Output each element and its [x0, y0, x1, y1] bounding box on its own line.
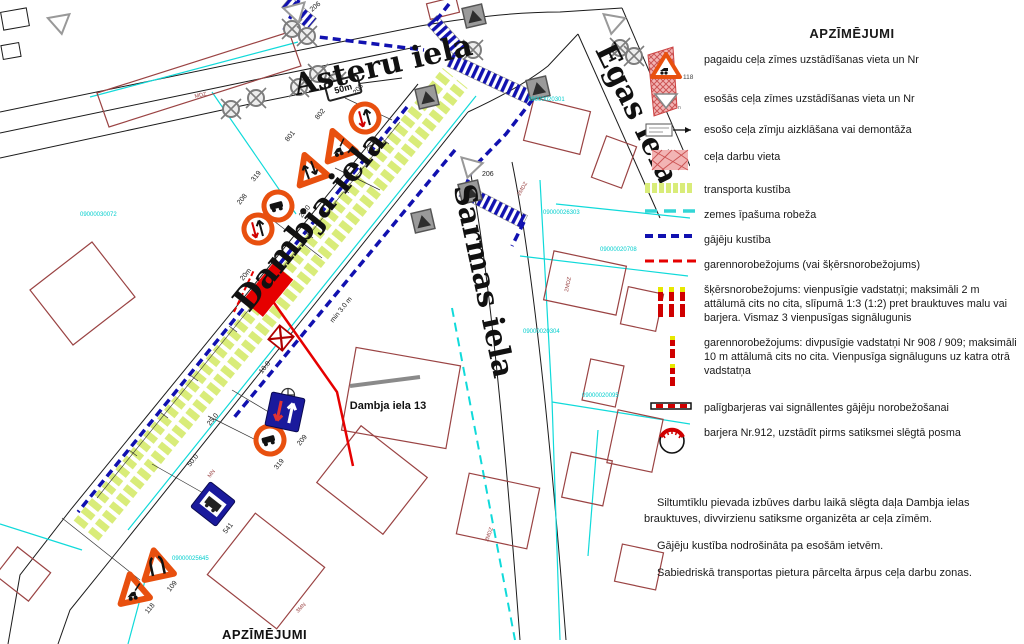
building-label: 2MDZ [484, 526, 495, 543]
legend-work-area-icon [642, 148, 704, 172]
legend-property-boundary-icon [642, 206, 704, 216]
legend-row-property-boundary: zemes īpašuma robeža [642, 206, 1022, 222]
heat-pipe [350, 377, 420, 386]
sign-109-narrowing-icon [139, 547, 174, 580]
sign-number: 206 [309, 1, 323, 14]
legend-row-temp-sign: 118 pagaidu ceļa zīmes uzstādīšanas viet… [642, 51, 1022, 81]
svg-text:118: 118 [683, 74, 694, 81]
legend-temp-sign-icon: 118 [642, 51, 704, 81]
notes-block: Siltumtīklu pievada izbūves darbu laikā … [644, 496, 1022, 593]
legend-cross-barrier-posts-icon [642, 281, 704, 321]
sign-number: 208 [236, 193, 249, 207]
bottom-legend-title: APZĪMĒJUMI [222, 627, 307, 642]
legend-row-aux-barriers: palīgbarjeras vai signāllentes gājēju no… [642, 399, 1022, 415]
sign-number: 801 [284, 130, 297, 144]
legend-text: pagaidu ceļa zīmes uzstādīšanas vieta un… [704, 51, 919, 67]
legend-row-cross-barrier-posts: šķērsnorobežojums: vienpusīgie vadstatņi… [642, 281, 1022, 325]
property-boundaries [0, 42, 690, 644]
legend-row-longitudinal-posts: garennorobežojums: divpusīgie vadstatņi … [642, 334, 1022, 390]
building-label: 3MN [295, 602, 307, 614]
legend-row-barrier-912: barjera Nr.912, uzstādīt pirms satiksmei… [642, 424, 1022, 456]
cadastral-number: 09000020095 [582, 393, 619, 399]
legend-text: gājēju kustība [704, 231, 771, 247]
legend-text: transporta kustība [704, 181, 790, 197]
sign-number: 802 [314, 108, 327, 122]
note-paragraph: Gājēju kustība nodrošināta pa esošām iet… [644, 539, 1022, 555]
legend-longitudinal-barrier-icon [642, 256, 704, 266]
legend-panel: APZĪMĒJUMI 118 pagaidu ceļa zīmes uzstād… [642, 26, 1022, 465]
site-plan-map: 50m Asteru iela Dambja iela Egas iela Sa… [0, 0, 690, 644]
legend-row-longitudinal-barrier: garennorobežojums (vai šķērsnorobežojums… [642, 256, 1022, 272]
legend-text: garennorobežojums (vai šķērsnorobežojums… [704, 256, 920, 272]
sign-number: 319 [250, 170, 263, 184]
temp-blue-sign-icons [191, 392, 306, 527]
cadastral-number: 09000025645 [172, 556, 209, 562]
measurement: min 3.0 m [329, 296, 354, 324]
cadastral-number: 09000020301 [528, 97, 565, 103]
legend-text: esošo ceļa zīmju aizklāšana vai demontāž… [704, 121, 912, 137]
legend-existing-sign-icon: n [642, 90, 704, 112]
address-label: Dambja iela 13 [350, 400, 426, 412]
sign-number: 209 [296, 434, 309, 448]
building-label: 2MDZ [564, 276, 573, 293]
cadastral-number: 09000020708 [600, 247, 637, 253]
legend-text: ceļa darbu vieta [704, 148, 780, 164]
legend-row-existing-sign: n esošās ceļa zīmes uzstādīšanas vieta u… [642, 90, 1022, 112]
sign-209-icon [265, 392, 305, 432]
legend-text: šķērsnorobežojums: vienpusīgie vadstatņi… [704, 281, 1022, 325]
building-label: MN [207, 469, 217, 479]
cadastral-number: 09000020304 [523, 329, 560, 335]
legend-row-pedestrian-flow: gājēju kustība [642, 231, 1022, 247]
legend-row-sign-removal: esošo ceļa zīmju aizklāšana vai demontāž… [642, 121, 1022, 139]
legend-pedestrian-flow-icon [642, 231, 704, 241]
note-paragraph: Sabiedriskā transportas pietura pārcelta… [644, 566, 1022, 582]
sign-541-bus-icon [191, 482, 236, 527]
legend-barrier-912-icon [642, 424, 704, 456]
legend-text: palīgbarjeras vai signāllentes gājēju no… [704, 399, 949, 415]
traffic-scheme-page: 50m Asteru iela Dambja iela Egas iela Sa… [0, 0, 1024, 644]
sign-number: 109 [166, 580, 179, 594]
legend-longitudinal-posts-icon [642, 334, 704, 390]
legend-text: zemes īpašuma robeža [704, 206, 816, 222]
legend-row-transport-flow: transporta kustība [642, 181, 1022, 197]
building-label: 2MDZ [517, 180, 530, 197]
legend-text: garennorobežojums: divpusīgie vadstatņi … [704, 334, 1022, 378]
cadastral-number: 09000030072 [80, 212, 117, 218]
sign-number: 118 [144, 602, 157, 615]
legend-text: barjera Nr.912, uzstādīt pirms satiksmei… [704, 424, 961, 440]
sign-number: 541 [222, 522, 235, 536]
svg-text:n: n [678, 105, 681, 111]
sign-number: 206 [482, 171, 494, 178]
cadastral-number: 09000026303 [543, 210, 580, 216]
legend-text: esošās ceļa zīmes uzstādīšanas vieta un … [704, 90, 915, 106]
sign-number: 319 [273, 458, 286, 472]
note-paragraph: Siltumtīklu pievada izbūves darbu laikā … [644, 496, 1022, 528]
legend-row-work-area: ceļa darbu vieta [642, 148, 1022, 172]
legend-aux-barriers-icon [642, 399, 704, 413]
barrier-912-icon [268, 325, 293, 350]
legend-sign-removal-icon [642, 121, 704, 139]
legend-transport-flow-icon [642, 181, 704, 195]
legend-title: APZĪMĒJUMI [642, 26, 1022, 41]
road-edges [0, 8, 690, 644]
